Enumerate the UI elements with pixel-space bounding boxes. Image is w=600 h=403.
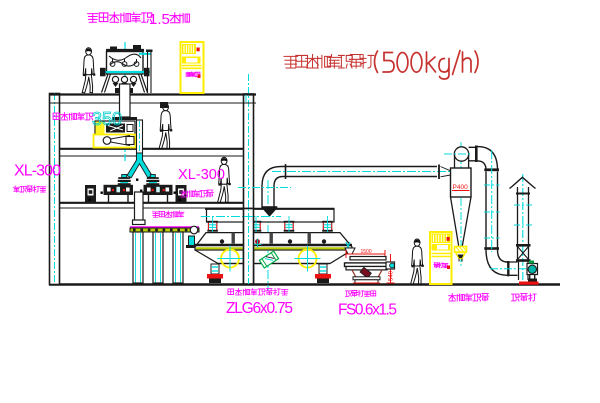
svg-text:1.5: 1.5	[149, 11, 170, 28]
svg-text:XL-300: XL-300	[14, 163, 61, 180]
svg-text:540: 540	[389, 270, 395, 281]
svg-text:FS0.6x1.5: FS0.6x1.5	[338, 302, 397, 319]
svg-text:P400: P400	[453, 184, 469, 191]
svg-text:ZLG6x0.75: ZLG6x0.75	[226, 300, 293, 317]
svg-text:1500: 1500	[361, 249, 372, 255]
svg-text:350: 350	[92, 109, 122, 129]
svg-text:XL-300: XL-300	[178, 167, 225, 183]
